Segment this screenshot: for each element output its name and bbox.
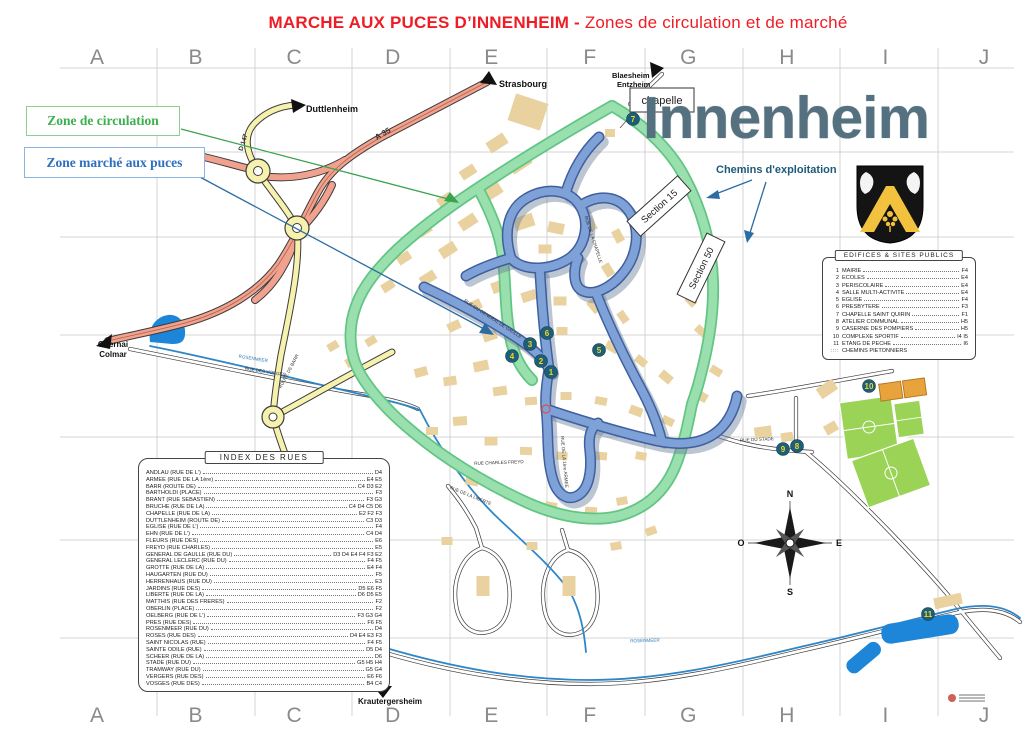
grid-letter: D [385,704,400,727]
site-number: 1 [830,268,839,275]
building [547,221,565,235]
grid-ref: I4 I5 [957,334,968,341]
dotted-leader [217,500,365,501]
destination-label: Blaesheim [612,71,650,80]
building [492,386,507,397]
grid-letter: E [484,704,498,727]
street-index-row: EHN (RUE DE L') C4 D4 [146,531,382,538]
dotted-leader [204,650,365,651]
grid-letter: F [583,704,596,727]
street-label: RUE DU STADE [740,436,774,443]
public-site-row: 9 CASERNE DES POMPIERS H5 [830,326,968,333]
poi-marker-number: 6 [545,329,550,338]
building [527,542,538,550]
dotted-leader [203,670,364,671]
street-index-row: BRANT (RUE SEBASTIEN) F3 G3 [146,497,382,504]
street-name: OBERLIN (PLACE) [146,606,194,613]
dotted-leader [864,300,959,301]
legend-zone-marche: Zone marché aux puces [24,147,205,178]
site-name: CASERNE DES POMPIERS [842,326,913,333]
building [485,437,498,446]
dotted-leader [196,609,373,610]
public-site-row: 5 EGLISE F4 [830,297,968,304]
grid-ref: H5 [961,319,968,326]
grid-ref: E4 F4 [367,565,382,572]
street-name: PRES (RUE DES) [146,620,191,627]
grid-ref: E4 E5 [367,477,382,484]
grid-ref: E3 [375,579,382,586]
dotted-leader [193,663,355,664]
publisher-logo [948,694,985,702]
public-sites-panel: EDIFICES & SITES PUBLICS 1 MAIRIE F4 2 E… [822,257,976,360]
poi-marker-number: 4 [510,352,515,361]
grid-ref: F4 F5 [367,640,382,647]
grid-letter: J [979,704,990,727]
street-name: ARMEE (RUE DE LA 1ère) [146,477,213,484]
grid-ref: G5 H5 H4 [357,660,382,667]
grid-letter: B [189,704,203,727]
site-number: 3 [830,283,839,290]
street-name: GENERAL LECLERC (RUE DU) [146,558,227,565]
dotted-leader [202,684,365,685]
dotted-leader [229,561,366,562]
street-index-row: PRES (RUE DES) F6 F5 [146,620,382,627]
street-index-row: HERRENHAUS (RUE DU) E3 [146,579,382,586]
grid-letter: H [779,46,794,69]
building [610,541,622,551]
building [611,228,625,244]
street-index-row: GROTTE (RUE DE LA) E4 F4 [146,565,382,572]
grid-ref: F2 [375,606,382,613]
page-title-regular: Zones de circulation et de marché [585,13,848,32]
page-title-bold: MARCHE AUX PUCES D’INNENHEIM - [269,13,585,32]
dotted-leader [206,507,346,508]
site-name: SALLE MULTI-ACTIVITE [842,290,904,297]
dotted-leader [863,271,959,272]
destination-label: Obernai [98,340,128,349]
grid-letter: F [583,46,596,69]
page-title: MARCHE AUX PUCES D’INNENHEIM - Zones de … [0,13,1024,33]
grid-letter: I [882,46,888,69]
town-name: Innenheim [643,84,929,152]
site-number: 2 [830,275,839,282]
destination-label: Colmar [99,350,127,359]
grid-ref: C4 D4 [366,531,382,538]
street-name: HERRENHAUS (RUE DU) [146,579,212,586]
dotted-leader [204,493,374,494]
poi-marker-number: 2 [539,357,544,366]
site-number: 4 [830,290,839,297]
site-number: 11 [830,341,839,348]
publisher-logo-icon [948,694,956,702]
grid-ref: B4 C4 [366,681,382,688]
grid-letter: H [779,704,794,727]
site-number: 6 [830,304,839,311]
street-index-row: DUTTLENHEIM (ROUTE DE) C3 D3 [146,518,382,525]
street-index-row: BARTHOLDI (PLACE) F3 [146,490,382,497]
building [616,310,629,324]
dotted-leader [214,582,373,583]
building [628,405,643,418]
building [616,496,628,506]
street-name: TRAMWAY (RUE DU) [146,667,201,674]
public-site-row: 7 CHAPELLE SAINT QUIRIN F1 [830,312,968,319]
building [563,576,576,596]
grid-ref: F4 F5 [367,558,382,565]
dotted-leader [203,473,373,474]
grid-ref: F5 [375,572,382,579]
building [644,525,657,536]
street-index-row: SCHEER (RUE DE LA) D6 [146,654,382,661]
street-name: GENERAL DE GAULLE (RUE DU) [146,552,232,559]
street-name: BRANT (RUE SEBASTIEN) [146,497,215,504]
dotted-leader [210,575,374,576]
dotted-leader [206,568,365,569]
street-index-row: SAINTE ODILE (RUE) D5 D4 [146,647,382,654]
grid-letter: A [90,46,104,69]
building [426,427,438,435]
grid-ref: C4 D3 E2 [358,484,382,491]
coat-of-arms [857,166,923,243]
dotted-leader [200,527,373,528]
street-index-row: FLEURS (RUE DES) E6 [146,538,382,545]
building [539,245,552,254]
street-name: FLEURS (RUE DES) [146,538,198,545]
chemins-arrows [706,180,766,243]
destination-label: Strasbourg [499,79,547,89]
grid-ref: F4 [375,524,382,531]
grid-ref: D6 D5 E5 [358,592,382,599]
street-index-row: STADE (RUE DU) G5 H5 H4 [146,660,382,667]
building [554,297,567,306]
building [601,262,616,278]
street-name: ROSES (RUE DES) [146,633,196,640]
grid-ref: E4 [961,283,968,290]
building [442,537,453,545]
fishing-ponds [844,613,961,676]
building [473,360,490,373]
street-index-row: ROSENMEER (RUE DU) D4 [146,626,382,633]
street-index-row: TRAMWAY (RUE DU) G5 G4 [146,667,382,674]
grid-letter: C [287,704,302,727]
street-index-row: MATTHIS (RUE DES FRERES) F2 [146,599,382,606]
street-index-row: JARDINS (RUE DES) D5 E6 F5 [146,586,382,593]
street-name: BARTHOLDI (PLACE) [146,490,202,497]
tennis-courts [879,378,927,401]
grid-ref: D5 E6 F5 [358,586,382,593]
street-index-row: OELBERG (RUE DE L') F3 G3 G4 [146,613,382,620]
grid-ref: F3 G3 [366,497,382,504]
compass-rose: NSEO [737,489,842,597]
destination-label: Duttlenheim [306,104,358,114]
poi-marker-number: 3 [528,340,533,349]
dotted-leader [906,293,959,294]
grid-ref: C4 D4 C5 D6 [349,504,382,511]
compass-letter: N [787,489,794,499]
grid-letter: J [979,46,990,69]
site-name: ATELIER COMMUNAL [842,319,899,326]
dotted-leader [893,344,961,345]
street-name: VOSGES (RUE DES) [146,681,200,688]
building [823,420,839,435]
street-name: OELBERG (RUE DE L') [146,613,205,620]
street-index-row: ARMEE (RUE DE LA 1ère) E4 E5 [146,477,382,484]
grid-ref: E6 [375,538,382,545]
street-name: VERGERS (RUE DES) [146,674,204,681]
public-site-row: 8 ATELIER COMMUNAL H5 [830,319,968,326]
building [520,447,532,455]
grid-ref: F3 G3 G4 [357,613,382,620]
street-name: CHAPELLE (RUE DE LA) [146,511,210,518]
street-index-row: EGLISE (RUE DE L') F4 [146,524,382,531]
map-page: chapelle Section 15 Section 50 NSEO RUE … [0,0,1024,737]
street-name: JARDINS (RUE DES) [146,586,200,593]
street-name: SAINTE ODILE (RUE) [146,647,202,654]
site-number: 9 [830,326,839,333]
dotted-leader [882,307,960,308]
grid-ref: E4 [961,275,968,282]
building [453,416,468,426]
public-site-row: 10 COMPLEXE SPORTIF I4 I5 [830,334,968,341]
grid-ref: H5 [961,326,968,333]
compass-letter: S [787,587,793,597]
site-number: 5 [830,297,839,304]
street-name: SAINT NICOLAS (RUE) [146,640,206,647]
street-name: MATTHIS (RUE DES FRERES) [146,599,225,606]
site-number: 8 [830,319,839,326]
street-index-row: VOSGES (RUE DES) B4 C4 [146,681,382,688]
grid-ref: F4 [961,297,968,304]
grid-ref: F3 [961,304,968,311]
street-name: EGLISE (RUE DE L') [146,524,198,531]
building [326,340,340,352]
grid-ref: E5 [375,545,382,552]
grid-ref: D3 D4 E4 F4 F3 E2 [333,552,382,559]
building [520,289,537,303]
grid-ref: D4 [375,470,382,477]
dotted-leader [200,541,373,542]
street-name: DUTTLENHEIM (ROUTE DE) [146,518,220,525]
site-name: COMPLEXE SPORTIF [842,334,899,341]
building [477,576,490,596]
street-label: RUE CHARLES FREYD [474,459,524,466]
dotted-leader [206,657,373,658]
compass-letter: O [737,538,744,548]
dotted-leader [211,629,373,630]
public-site-row: 3 PERISCOLAIRE E4 [830,283,968,290]
building [561,392,572,400]
building [457,212,478,231]
public-site-row: 6 PRESBYTERE F3 [830,304,968,311]
poi-marker-number: 7 [631,115,636,124]
grid-ref: E6 F6 [367,674,382,681]
street-index-row: BRUCHE (RUE DE LA) C4 D4 C5 D6 [146,504,382,511]
street-name: GROTTE (RUE DE LA) [146,565,204,572]
dotted-leader [234,555,331,556]
grid-ref: D5 D4 [366,647,382,654]
dotted-path-symbol: :::: [830,348,839,355]
site-name: ECOLES [842,275,865,282]
street-name: LIBERTE (RUE DE LA) [146,592,204,599]
building [525,397,538,406]
building [557,327,568,335]
grid-ref: C3 D3 [366,518,382,525]
publisher-logo-text-lines [959,694,985,702]
grid-ref: F3 [375,490,382,497]
dotted-leader [227,602,374,603]
poi-marker-number: 5 [597,346,602,355]
site-name: EGLISE [842,297,862,304]
site-name: MAIRIE [842,268,861,275]
street-name: ANDLAU (RUE DE L') [146,470,201,477]
street-index-row: BARR (ROUTE DE) C4 D3 E2 [146,484,382,491]
poi-marker-number: 9 [781,445,786,454]
grid-letter: D [385,46,400,69]
legend-zone-circulation: Zone de circulation [26,106,180,136]
street-name: STADE (RUE DU) [146,660,191,667]
public-site-row: 1 MAIRIE F4 [830,268,968,275]
dotted-leader [206,677,366,678]
dotted-leader [212,548,373,549]
street-name: ROSENMEER (RUE DU) [146,626,209,633]
dotted-leader [202,589,356,590]
street-name: HAUGARTEN (RUE DU) [146,572,208,579]
site-name: PERISCOLAIRE [842,283,883,290]
street-index-row: GENERAL DE GAULLE (RUE DU) D3 D4 E4 F4 F… [146,552,382,559]
site-number: 7 [830,312,839,319]
building [594,396,607,406]
dotted-leader [901,322,959,323]
poi-marker-number: 8 [795,442,800,451]
public-site-row: 2 ECOLES E4 [830,275,968,282]
public-site-row: 11 ETANG DE PECHE I6 [830,341,968,348]
street-index-panel: INDEX DES RUES ANDLAU (RUE DE L') D4 ARM… [138,458,390,692]
poi-marker-number: 1 [549,368,554,377]
grid-ref: F4 [961,268,968,275]
street-index-row: FREYD (RUE CHARLES) E5 [146,545,382,552]
building [446,319,462,333]
dotted-leader [915,329,959,330]
street-name: EHN (RUE DE L') [146,531,190,538]
dotted-leader [192,534,364,535]
grid-ref: F6 F5 [367,620,382,627]
building [443,376,457,387]
street-index-row: CHAPELLE (RUE DE LA) E2 F2 F3 [146,511,382,518]
dotted-leader [193,623,365,624]
dotted-leader [222,521,364,522]
dotted-leader [198,636,348,637]
site-name: CHAPELLE SAINT QUIRIN [842,312,910,319]
grid-ref: F1 [961,312,968,319]
public-sites-list: 1 MAIRIE F4 2 ECOLES E4 3 PERISCOLAIRE E… [830,268,968,348]
grid-letter: I [882,704,888,727]
dotted-leader [885,286,959,287]
street-index-row: ANDLAU (RUE DE L') D4 [146,470,382,477]
building [485,133,508,154]
building [459,163,478,180]
sports-complex [839,378,930,508]
grid-ref: E2 F2 F3 [359,511,382,518]
section-15-box: Section 15 [627,176,691,236]
street-label: ROSENMEER [630,637,660,643]
dotted-leader [901,337,955,338]
grid-letter: A [90,704,104,727]
grid-ref: I6 [963,341,968,348]
dotted-leader [867,278,959,279]
public-sites-title: EDIFICES & SITES PUBLICS [835,250,963,261]
street-index-row: GENERAL LECLERC (RUE DU) F4 F5 [146,558,382,565]
compass-letter: E [836,538,842,548]
grid-ref: F2 [375,599,382,606]
public-sites-footer: :::: CHEMINS PIETONNIERS [830,348,968,355]
street-index-row: LIBERTE (RUE DE LA) D6 D5 E5 [146,592,382,599]
building [780,432,793,443]
grid-letter: G [680,46,696,69]
street-label: ROSENMEER [238,354,269,364]
grid-ref: E4 [961,290,968,297]
building [508,93,549,130]
street-index-list: ANDLAU (RUE DE L') D4 ARMEE (RUE DE LA 1… [146,470,382,688]
street-name: BRUCHE (RUE DE LA) [146,504,204,511]
street-index-row: SAINT NICOLAS (RUE) F4 F5 [146,640,382,647]
grid-letter: C [287,46,302,69]
street-index-row: VERGERS (RUE DES) E6 F6 [146,674,382,681]
building [364,335,378,347]
street-name: BARR (ROUTE DE) [146,484,196,491]
site-name: ETANG DE PECHE [842,341,891,348]
street-index-row: ROSES (RUE DES) D4 E4 E3 F3 [146,633,382,640]
building [414,366,429,378]
site-number: 10 [830,334,839,341]
legend-zone-circulation-label: Zone de circulation [47,113,159,129]
legend-zone-marche-label: Zone marché aux puces [47,155,183,171]
dotted-leader [212,514,357,515]
dotted-leader [912,315,959,316]
chemins-pietonniers-label: CHEMINS PIETONNIERS [842,348,907,355]
grid-ref: G5 G4 [366,667,382,674]
street-index-title: INDEX DES RUES [205,451,324,464]
grid-letter: B [189,46,203,69]
grid-ref: D4 [375,626,382,633]
grid-ref: D4 E4 E3 F3 [350,633,382,640]
grid-letter: G [680,704,696,727]
building [709,364,723,377]
dotted-leader [198,487,356,488]
building [438,241,458,259]
street-index-row: HAUGARTEN (RUE DU) F5 [146,572,382,579]
dotted-leader [215,480,365,481]
street-name: SCHEER (RUE DE LA) [146,654,204,661]
dotted-leader [206,595,356,596]
poi-marker-number: 11 [924,610,933,619]
street-name: FREYD (RUE CHARLES) [146,545,210,552]
zone-circulation-path [351,106,714,519]
chemins-exploitation-label: Chemins d'exploitation [716,164,837,176]
building [605,129,615,137]
grid-ref: D6 [375,654,382,661]
grid-letter: E [484,46,498,69]
street-index-row: OBERLIN (PLACE) F2 [146,606,382,613]
poi-marker-number: 10 [865,382,874,391]
dotted-leader [208,643,366,644]
public-site-row: 4 SALLE MULTI-ACTIVITE E4 [830,290,968,297]
dotted-leader [207,616,355,617]
building [658,369,674,384]
site-name: PRESBYTERE [842,304,880,311]
